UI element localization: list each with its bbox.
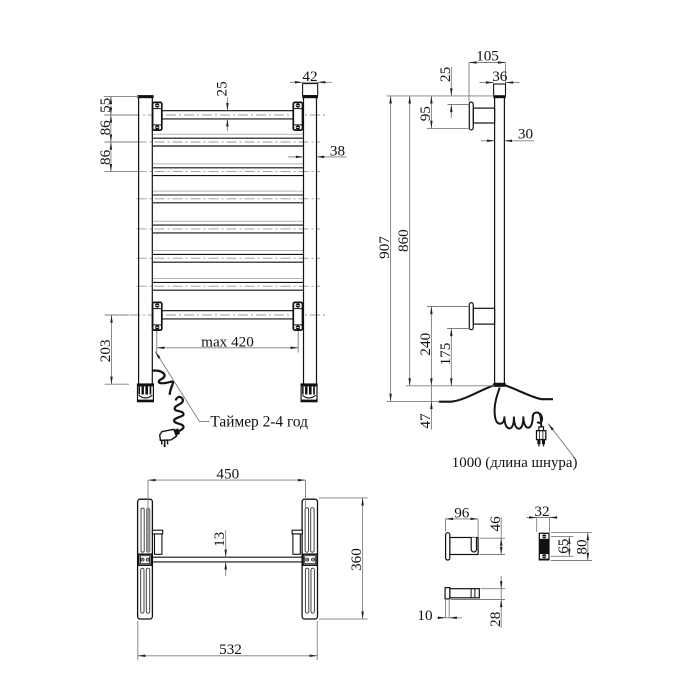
svg-text:Таймер 2-4 год: Таймер 2-4 год (210, 413, 308, 430)
svg-text:86: 86 (97, 149, 114, 165)
svg-text:96: 96 (454, 504, 470, 521)
svg-text:86: 86 (97, 120, 114, 136)
svg-text:10: 10 (417, 607, 433, 624)
svg-text:32: 32 (534, 503, 549, 520)
svg-text:65: 65 (555, 539, 572, 554)
svg-text:13: 13 (211, 532, 228, 547)
svg-text:25: 25 (437, 67, 454, 82)
svg-text:30: 30 (518, 125, 534, 142)
svg-text:532: 532 (219, 641, 242, 658)
svg-text:360: 360 (348, 548, 365, 571)
svg-text:95: 95 (417, 106, 434, 121)
svg-text:max 420: max 420 (201, 334, 254, 351)
svg-text:450: 450 (216, 466, 239, 483)
svg-text:203: 203 (97, 339, 114, 362)
svg-text:105: 105 (476, 48, 499, 65)
svg-text:175: 175 (437, 343, 454, 366)
svg-text:47: 47 (417, 413, 434, 429)
svg-text:860: 860 (395, 229, 412, 252)
svg-text:42: 42 (302, 68, 317, 85)
svg-text:240: 240 (417, 332, 434, 355)
svg-text:28: 28 (487, 611, 504, 627)
svg-text:55: 55 (97, 98, 114, 113)
svg-text:80: 80 (573, 539, 590, 555)
svg-text:907: 907 (376, 236, 393, 259)
svg-text:25: 25 (214, 81, 231, 96)
svg-text:1000 (длина шнура): 1000 (длина шнура) (452, 455, 578, 471)
svg-text:46: 46 (487, 516, 504, 532)
svg-text:38: 38 (330, 142, 346, 159)
svg-text:36: 36 (492, 68, 508, 85)
